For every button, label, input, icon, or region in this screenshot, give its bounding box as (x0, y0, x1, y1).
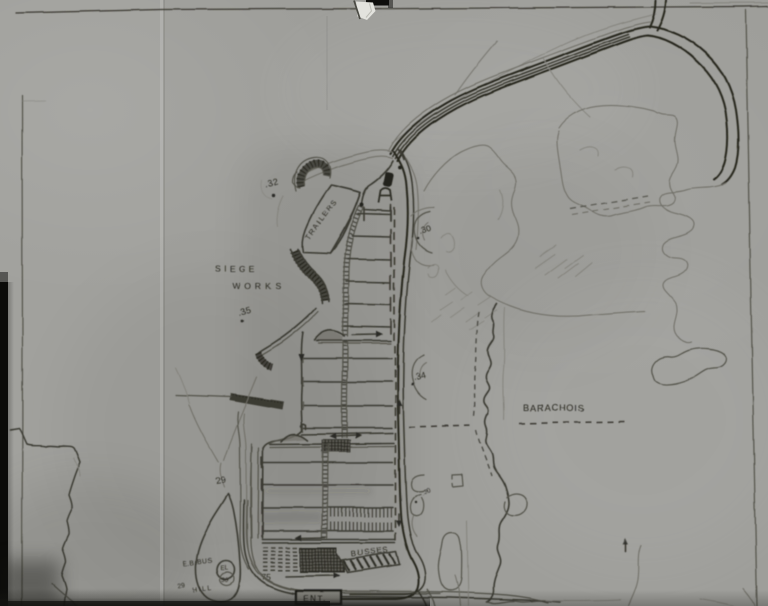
svg-text:EL: EL (220, 565, 228, 572)
svg-text:BARACHOIS: BARACHOIS (523, 403, 585, 413)
svg-text:29: 29 (215, 474, 227, 486)
svg-text:36: 36 (222, 577, 229, 584)
svg-text:SIEGE: SIEGE (215, 264, 258, 274)
svg-text:WORKS: WORKS (232, 281, 285, 291)
